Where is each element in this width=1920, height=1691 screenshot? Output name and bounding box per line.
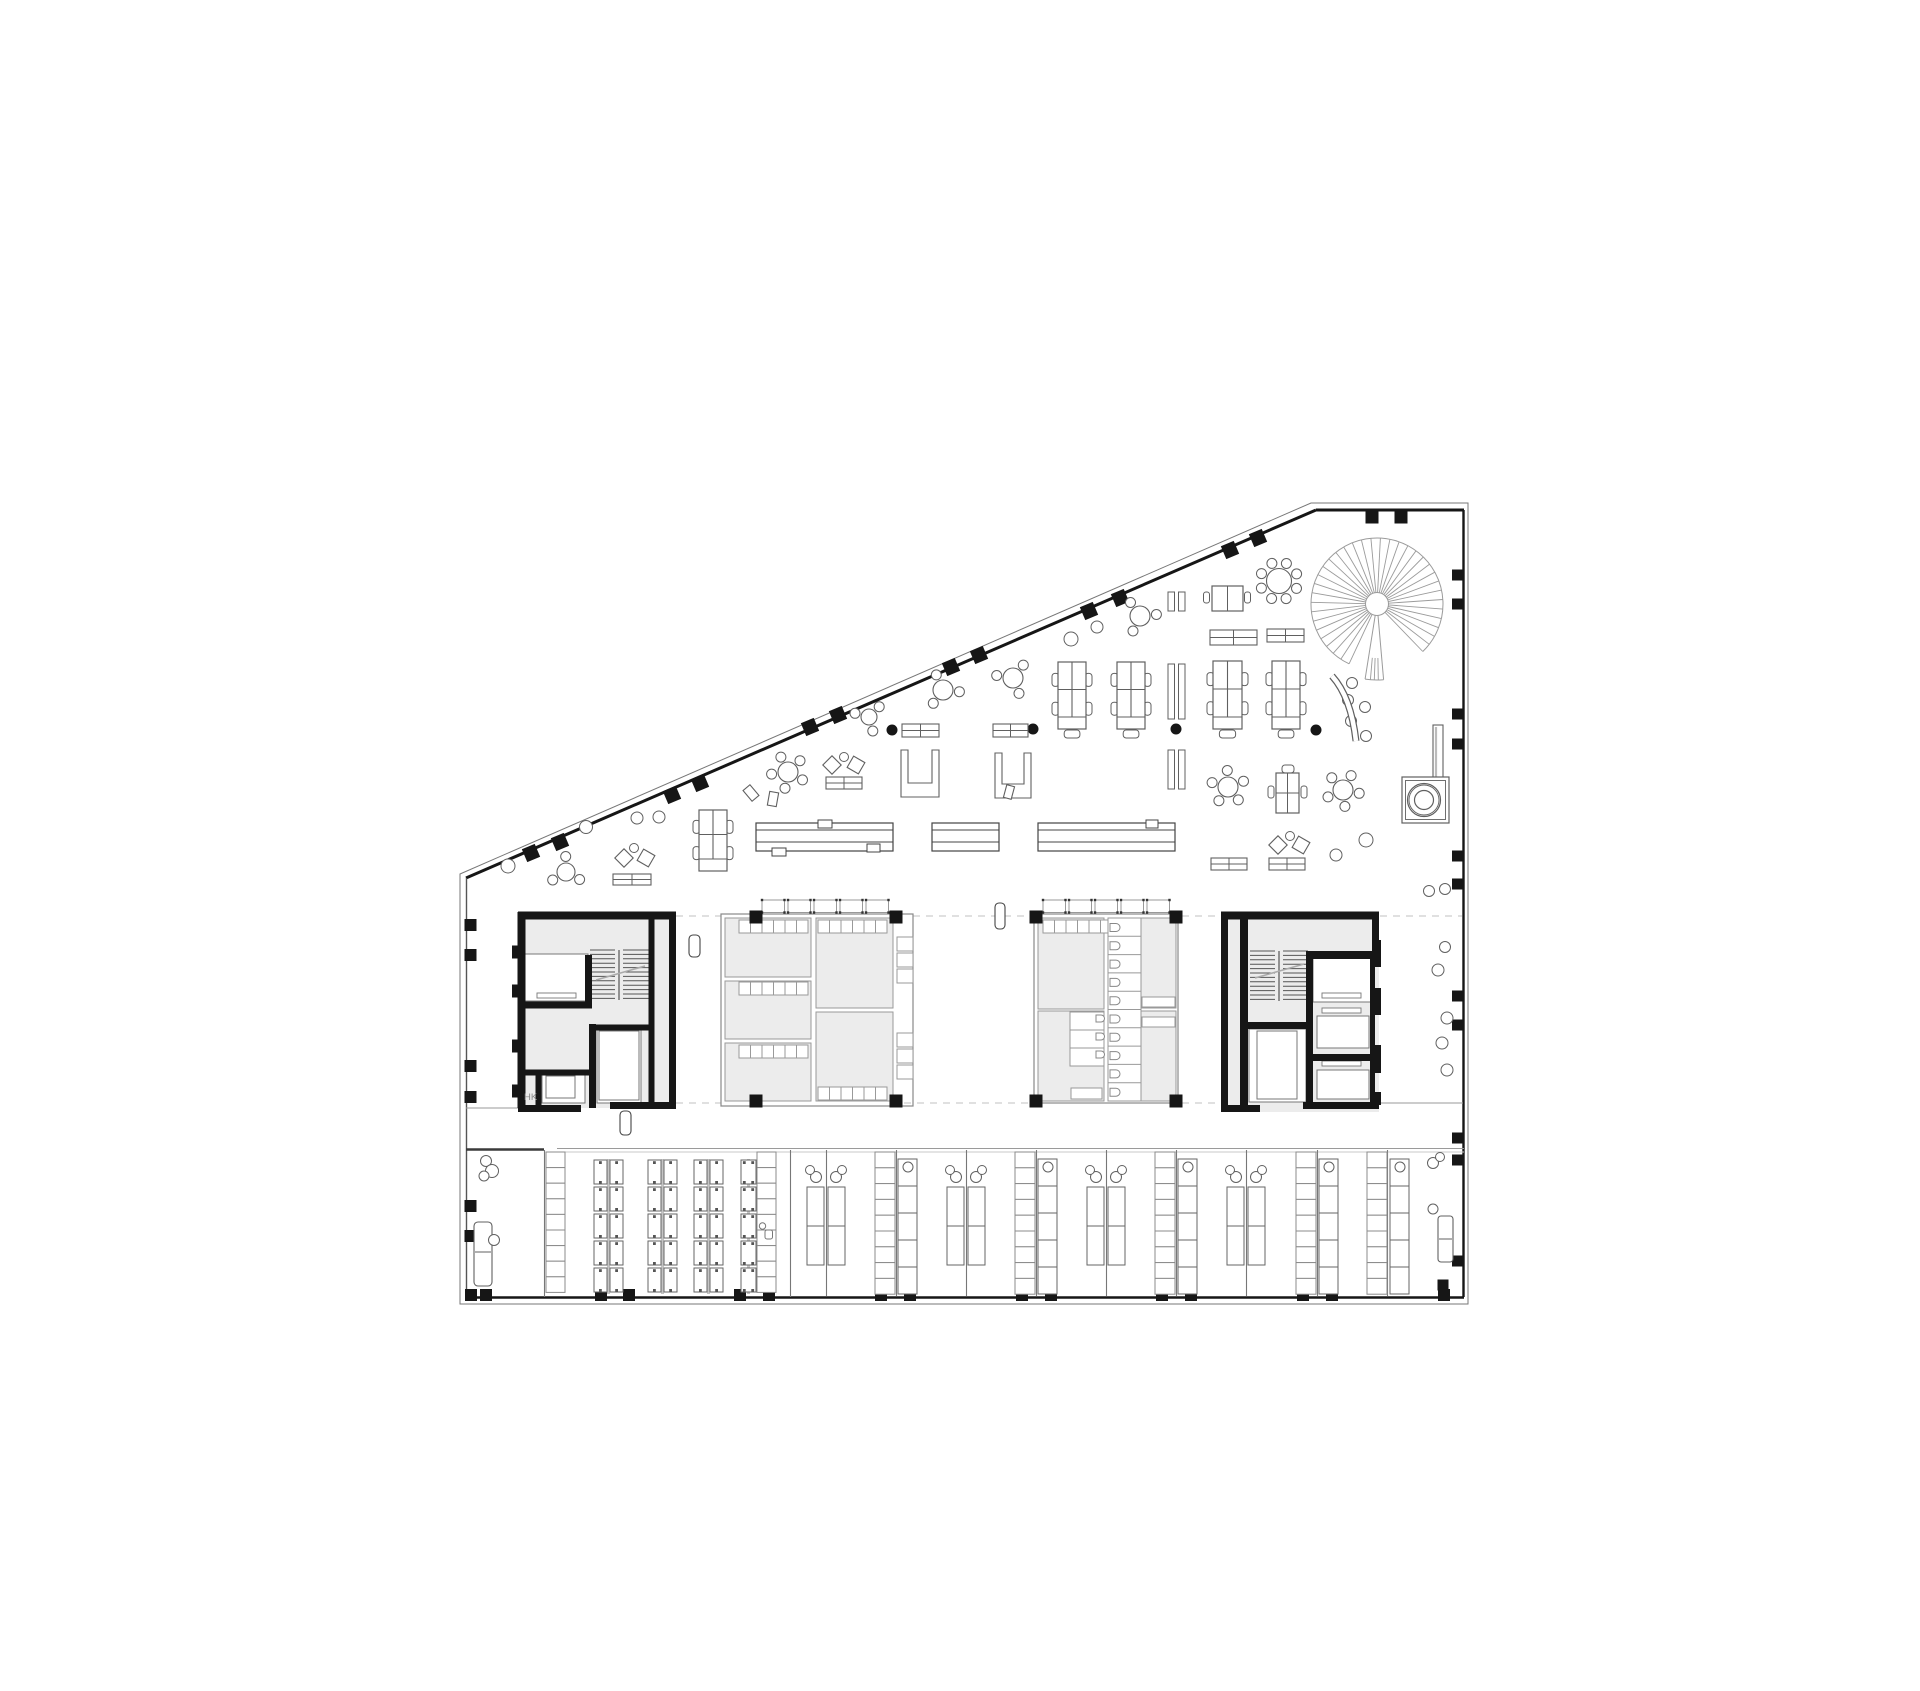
svg-text:HK: HK bbox=[524, 1092, 538, 1103]
